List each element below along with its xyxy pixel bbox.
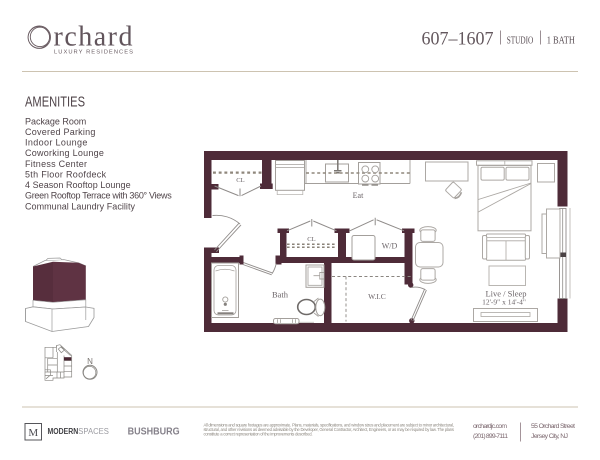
svg-text:Bath: Bath (272, 290, 289, 300)
svg-text:MODERN: MODERN (48, 427, 79, 436)
svg-text:Package Room: Package Room (25, 116, 86, 126)
svg-text:M: M (28, 427, 38, 439)
svg-text:AMENITIES: AMENITIES (25, 94, 85, 111)
svg-text:(201) 899-7111: (201) 899-7111 (473, 433, 508, 440)
svg-text:55 Orchard Street: 55 Orchard Street (531, 423, 575, 430)
svg-text:LUXURY RESIDENCES: LUXURY RESIDENCES (54, 49, 133, 55)
svg-text:constitute a correct represent: constitute a correct representation of t… (204, 432, 313, 437)
svg-text:Green Rooftop Terrace with 360: Green Rooftop Terrace with 360° Views (25, 191, 172, 201)
svg-text:SPACES: SPACES (78, 427, 109, 436)
svg-text:STUDIO: STUDIO (507, 35, 534, 46)
svg-text:N: N (87, 357, 93, 366)
svg-text:Coworking Lounge: Coworking Lounge (25, 148, 104, 158)
svg-text:BUSHBURG: BUSHBURG (128, 427, 180, 438)
svg-text:orchardjc.com: orchardjc.com (473, 423, 507, 430)
svg-text:W.I.C: W.I.C (368, 292, 386, 301)
svg-text:CL: CL (236, 177, 244, 184)
svg-text:Fitness Center: Fitness Center (25, 159, 87, 169)
svg-text:Covered Parking: Covered Parking (25, 127, 95, 137)
svg-text:rchard: rchard (54, 21, 135, 52)
svg-text:Communal Laundry Facility: Communal Laundry Facility (25, 201, 136, 211)
svg-text:Indoor Lounge: Indoor Lounge (25, 138, 87, 148)
svg-text:Jersey City, NJ: Jersey City, NJ (531, 433, 568, 440)
svg-text:12'-9" x 14'-4": 12'-9" x 14'-4" (482, 298, 526, 307)
svg-text:1 BATH: 1 BATH (547, 35, 575, 46)
svg-text:W/D: W/D (382, 241, 398, 250)
svg-text:4 Season Rooftop Lounge: 4 Season Rooftop Lounge (25, 180, 131, 190)
svg-text:607–1607: 607–1607 (422, 28, 494, 49)
svg-text:Eat: Eat (353, 191, 364, 200)
svg-text:CL: CL (307, 236, 315, 243)
svg-text:5th Floor Roofdeck: 5th Floor Roofdeck (25, 170, 107, 180)
